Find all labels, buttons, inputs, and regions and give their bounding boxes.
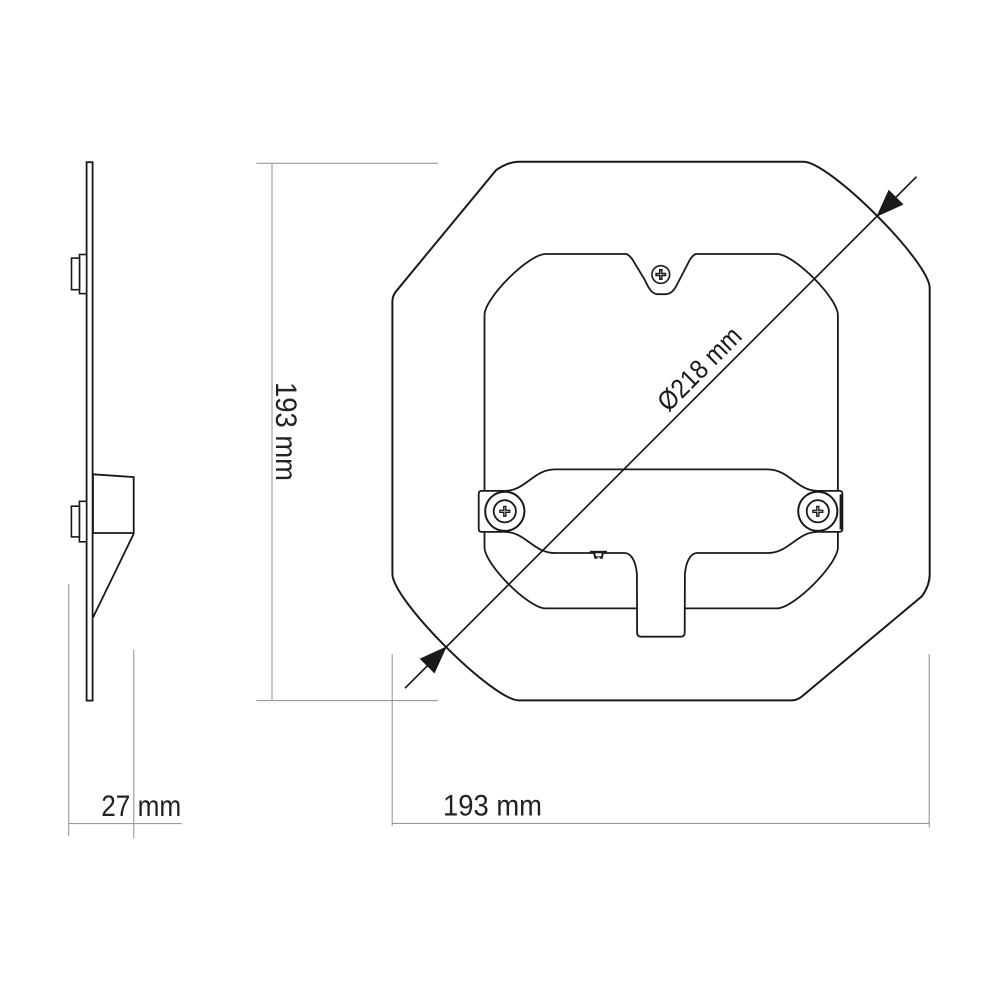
svg-text:27 mm: 27 mm — [101, 790, 181, 823]
svg-text:193 mm: 193 mm — [443, 790, 542, 823]
svg-text:193 mm: 193 mm — [269, 382, 302, 481]
